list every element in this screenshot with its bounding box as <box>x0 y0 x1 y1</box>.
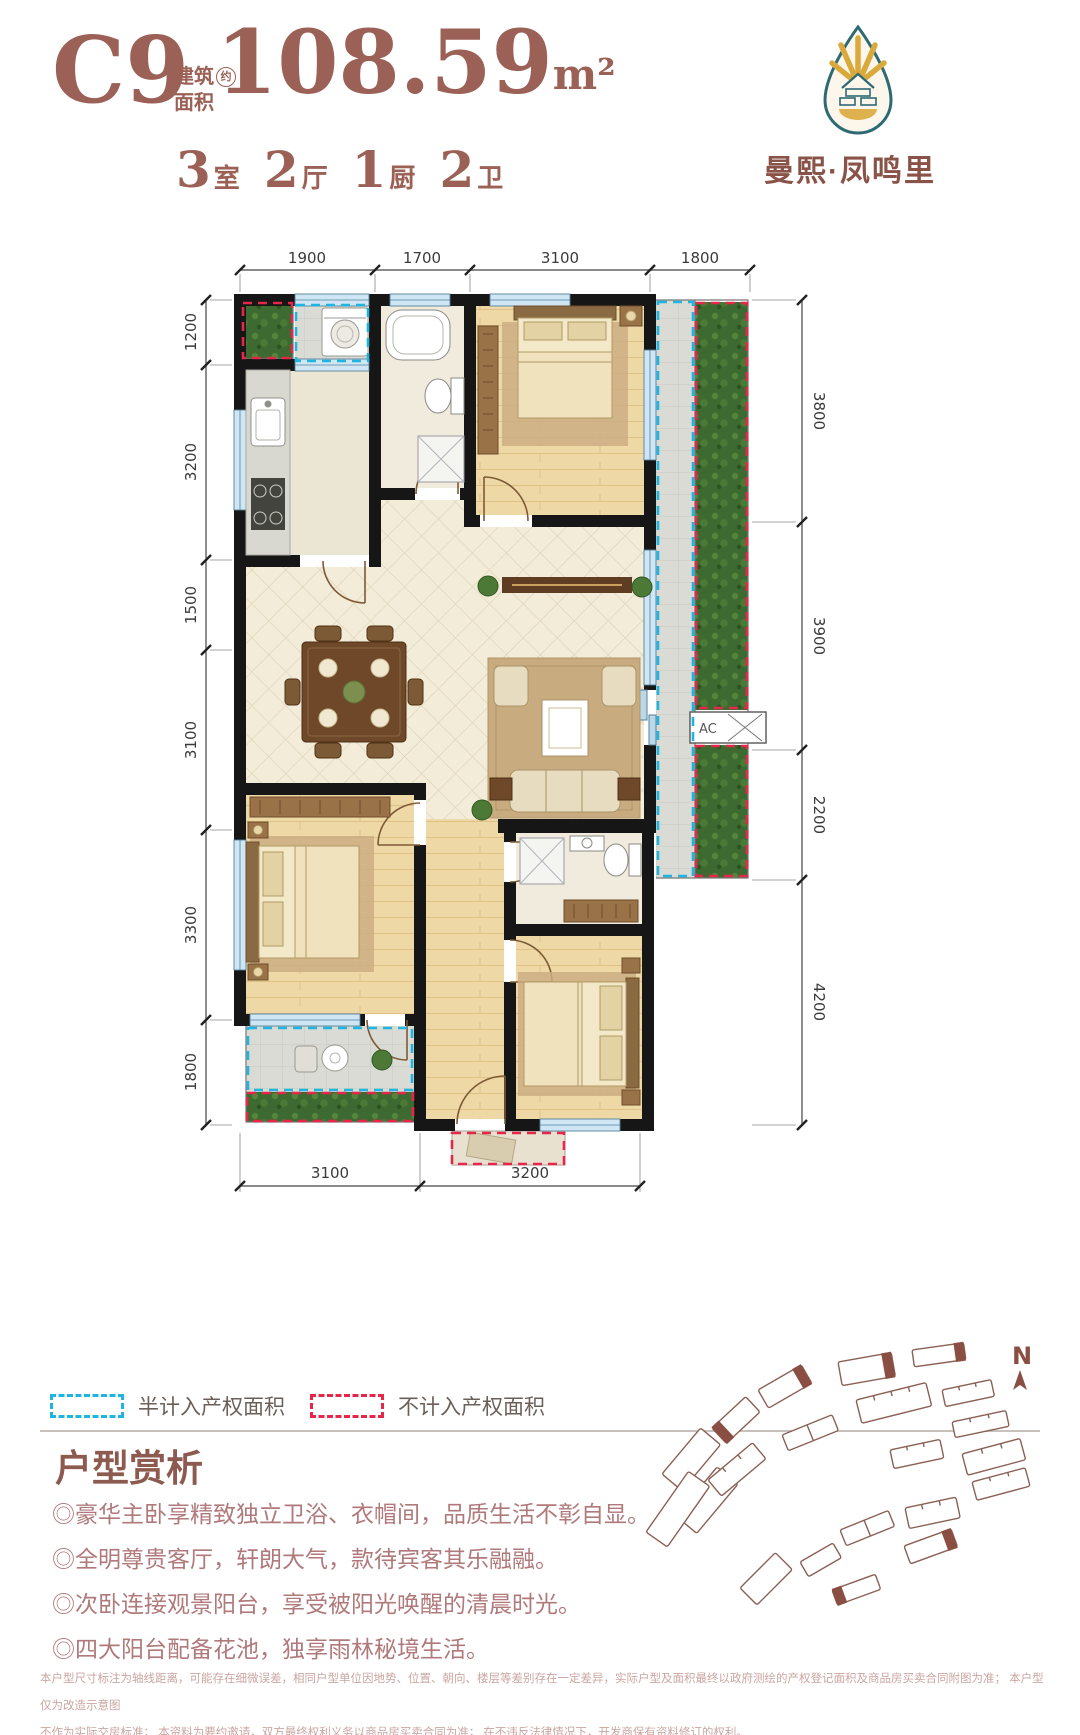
rooms-item: 1厨 <box>352 140 416 199</box>
svg-text:1500: 1500 <box>182 586 200 624</box>
svg-text:3200: 3200 <box>182 443 200 481</box>
side-balcony-floor <box>656 300 695 878</box>
ac-label: AC <box>699 722 717 737</box>
area-value: 108.59m² <box>216 14 616 111</box>
flower-bed-top-left <box>242 302 293 359</box>
svg-text:1800: 1800 <box>182 1053 200 1091</box>
analysis-list: ◎豪华主卧享精致独立卫浴、衣帽间，品质生活不彰自显。 ◎全明尊贵客厅，轩朗大气，… <box>52 1492 650 1672</box>
flyer-page: C9 建筑约 面积 108.59m² 3室 2厅 1厨 2卫 曼熙·凤鸣里 <box>0 0 1080 1735</box>
disclaimer: 本户型尺寸标注为轴线距离，可能存在细微误差，相同户型单位因地势、位置、朝向、楼层… <box>40 1666 1045 1735</box>
kitchen-fixtures <box>246 370 290 555</box>
analysis-title: 户型赏析 <box>55 1438 203 1492</box>
legend-not-counted: 不计入产权面积 <box>310 1391 545 1421</box>
legend-label: 半计入产权面积 <box>138 1391 285 1421</box>
svg-text:1700: 1700 <box>403 249 441 267</box>
floor-plan: AC <box>150 230 870 1230</box>
flower-bed-right-lower <box>695 745 748 878</box>
svg-text:3200: 3200 <box>511 1164 549 1182</box>
svg-text:1200: 1200 <box>182 313 200 351</box>
dining-set <box>285 626 423 758</box>
site-buildings <box>646 1342 1030 1606</box>
svg-text:3300: 3300 <box>182 906 200 944</box>
north-arrow-icon: N <box>1012 1342 1032 1390</box>
rooms-item: 3室 <box>176 140 240 199</box>
svg-text:1800: 1800 <box>681 249 719 267</box>
disclaimer-line2: 不作为实际交房标准； 本资料为要约邀请，双方最终权利义务以商品房买卖合同为准； … <box>40 1720 1045 1735</box>
svg-text:3900: 3900 <box>810 617 828 655</box>
rooms-item: 2卫 <box>439 140 503 199</box>
analysis-bullet: ◎次卧连接观景阳台，享受被阳光唤醒的清晨时光。 <box>52 1582 650 1627</box>
flower-bed-right-upper <box>695 302 748 710</box>
svg-text:2200: 2200 <box>810 796 828 834</box>
brand-name: 曼熙·凤鸣里 <box>740 146 960 190</box>
legend-half-counted: 半计入产权面积 <box>50 1391 285 1421</box>
analysis-bullet: ◎全明尊贵客厅，轩朗大气，款待宾客其乐融融。 <box>52 1537 650 1582</box>
washing-machine <box>322 308 368 356</box>
entry-hall-floor <box>426 819 504 1119</box>
north-label: N <box>1012 1342 1032 1370</box>
brand-logo-icon <box>818 24 898 136</box>
not-counted-swatch-icon <box>310 1394 384 1418</box>
analysis-bullet: ◎豪华主卧享精致独立卫浴、衣帽间，品质生活不彰自显。 <box>52 1492 650 1537</box>
area-unit: m² <box>553 50 616 99</box>
disclaimer-line1: 本户型尺寸标注为轴线距离，可能存在细微误差，相同户型单位因地势、位置、朝向、楼层… <box>40 1666 1045 1720</box>
rooms-summary: 3室 2厅 1厨 2卫 <box>176 140 503 199</box>
svg-text:3100: 3100 <box>541 249 579 267</box>
half-counted-swatch-icon <box>50 1394 124 1418</box>
svg-text:4200: 4200 <box>810 983 828 1021</box>
master-bedroom-furniture <box>478 306 642 454</box>
svg-text:3100: 3100 <box>182 721 200 759</box>
site-plan: N <box>600 1340 1060 1660</box>
svg-text:3100: 3100 <box>311 1164 349 1182</box>
area-label-line1: 建筑 <box>174 64 214 90</box>
unit-code: C9 <box>52 22 189 119</box>
flower-bed-bottom-left <box>246 1092 414 1122</box>
ac-platform: AC <box>690 712 766 743</box>
legend-label: 不计入产权面积 <box>398 1391 545 1421</box>
svg-text:3800: 3800 <box>810 392 828 430</box>
rooms-item: 2厅 <box>264 140 328 199</box>
svg-text:1900: 1900 <box>288 249 326 267</box>
